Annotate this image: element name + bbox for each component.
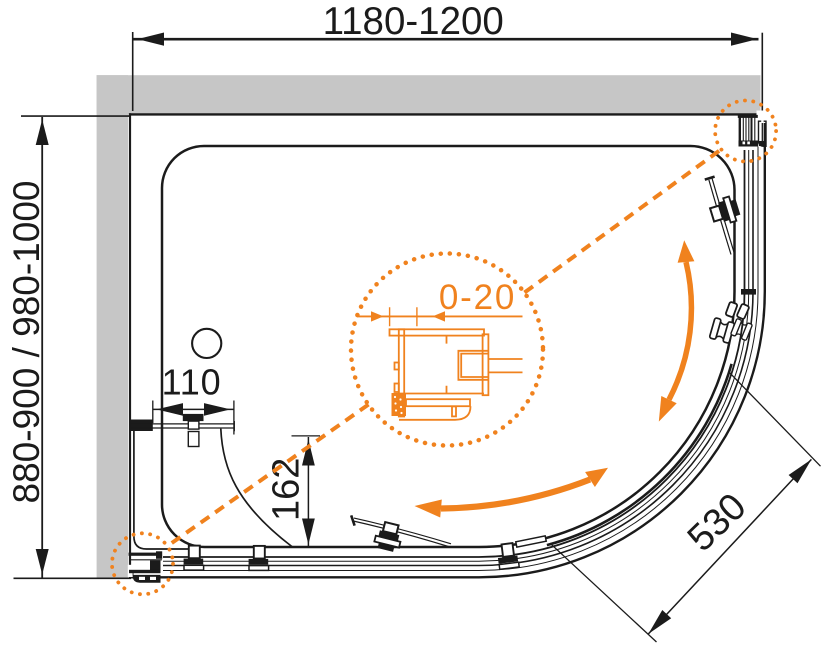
- svg-text:162: 162: [266, 458, 308, 521]
- svg-text:1180-1200: 1180-1200: [323, 0, 504, 43]
- svg-text:880-900 / 980-1000: 880-900 / 980-1000: [6, 181, 47, 504]
- svg-text:0-20: 0-20: [439, 278, 516, 317]
- svg-text:110: 110: [162, 362, 222, 403]
